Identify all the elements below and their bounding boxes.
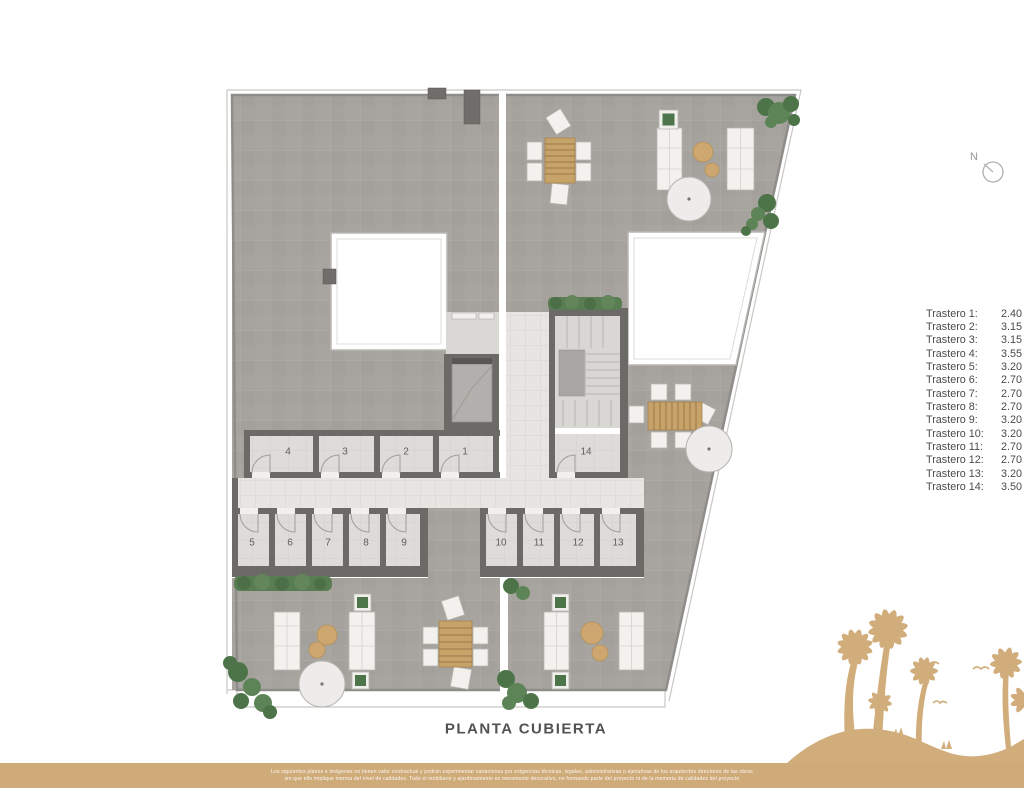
- legend-row: Trastero 5:3.20: [926, 360, 1022, 373]
- legend-room-name: Trastero 13:: [926, 468, 984, 480]
- legend-room-name: Trastero 9:: [926, 414, 978, 426]
- page-title: PLANTA CUBIERTA: [445, 721, 607, 738]
- legend-row: Trastero 10:3.20: [926, 427, 1022, 440]
- roof-plan-page: 1 2 3 4 5 6 7 8 9 10 11 12 13 14 N Trast…: [0, 0, 1024, 800]
- palm-silhouette: [786, 608, 1024, 766]
- legend-room-name: Trastero 2:: [926, 321, 978, 333]
- legend-room-area: 2.70: [1001, 401, 1022, 413]
- legend-room-name: Trastero 14:: [926, 481, 984, 493]
- disclaimer-line-2: sin que ello implique merma del nivel de…: [285, 776, 740, 782]
- parasol-top: [667, 177, 711, 221]
- room-label-13: 13: [612, 538, 623, 549]
- room-label-7: 7: [325, 538, 331, 549]
- disclaimer-bar: Los siguientes planos e imágenes no tien…: [0, 763, 1024, 788]
- north-indicator-icon: [983, 162, 1003, 182]
- room-label-9: 9: [401, 538, 407, 549]
- floor-plan: [0, 0, 1024, 800]
- room-label-8: 8: [363, 538, 369, 549]
- legend-row: Trastero 8:2.70: [926, 400, 1022, 413]
- legend-row: Trastero 14:3.50: [926, 480, 1022, 493]
- legend-room-name: Trastero 3:: [926, 334, 978, 346]
- legend-row: Trastero 3:3.15: [926, 334, 1022, 347]
- parasol-bottom-left: [299, 661, 345, 707]
- room-label-5: 5: [249, 538, 255, 549]
- palm-fronds-c: [910, 656, 938, 685]
- legend-room-area: 2.70: [1001, 374, 1022, 386]
- legend-room-area: 2.70: [1001, 454, 1022, 466]
- room-label-10: 10: [495, 538, 506, 549]
- legend-room-area: 3.20: [1001, 414, 1022, 426]
- room-label-14: 14: [580, 447, 591, 458]
- palm-fronds-e: [990, 646, 1023, 679]
- legend-room-area: 3.55: [1001, 348, 1022, 360]
- legend-room-name: Trastero 4:: [926, 348, 978, 360]
- room-label-11: 11: [534, 538, 544, 549]
- palm-fronds-b: [867, 608, 908, 649]
- room-label-6: 6: [287, 538, 293, 549]
- staircase: [549, 308, 628, 432]
- storage-legend: Trastero 1:2.40 Trastero 2:3.15 Trastero…: [926, 307, 1022, 494]
- skylight-void-left: [331, 233, 447, 350]
- legend-room-name: Trastero 5:: [926, 361, 978, 373]
- legend-row: Trastero 6:2.70: [926, 374, 1022, 387]
- legend-room-area: 3.15: [1001, 334, 1022, 346]
- legend-room-area: 3.50: [1001, 481, 1022, 493]
- legend-row: Trastero 7:2.70: [926, 387, 1022, 400]
- palm-fronds-a: [836, 628, 873, 665]
- room-label-3: 3: [342, 447, 348, 458]
- elevator: [444, 312, 499, 430]
- legend-room-name: Trastero 1:: [926, 308, 978, 320]
- legend-room-name: Trastero 7:: [926, 388, 978, 400]
- legend-room-name: Trastero 11:: [926, 441, 983, 453]
- legend-row: Trastero 1:2.40: [926, 307, 1022, 320]
- planter-top: [659, 110, 678, 129]
- legend-row: Trastero 12:2.70: [926, 454, 1022, 467]
- north-label: N: [970, 151, 978, 163]
- legend-room-area: 2.40: [1001, 308, 1022, 320]
- room-label-12: 12: [572, 538, 583, 549]
- legend-room-area: 3.20: [1001, 468, 1022, 480]
- hedge-bottom-left: [234, 574, 332, 591]
- legend-room-name: Trastero 8:: [926, 401, 978, 413]
- legend-room-name: Trastero 10:: [926, 428, 984, 440]
- passage: [428, 508, 480, 578]
- room-label-2: 2: [403, 447, 409, 458]
- legend-row: Trastero 9:3.20: [926, 414, 1022, 427]
- legend-row: Trastero 13:3.20: [926, 467, 1022, 480]
- legend-room-area: 3.15: [1001, 321, 1022, 333]
- legend-row: Trastero 2:3.15: [926, 320, 1022, 333]
- room-label-4: 4: [285, 447, 291, 458]
- legend-row: Trastero 4:3.55: [926, 347, 1022, 360]
- legend-room-name: Trastero 12:: [926, 454, 984, 466]
- room-label-1: 1: [462, 447, 468, 458]
- legend-room-area: 3.20: [1001, 428, 1022, 440]
- legend-room-area: 2.70: [1001, 441, 1022, 453]
- skylight-void-right: [628, 232, 765, 365]
- legend-room-name: Trastero 6:: [926, 374, 978, 386]
- disclaimer-line-1: Los siguientes planos e imágenes no tien…: [271, 769, 753, 775]
- legend-room-area: 2.70: [1001, 388, 1022, 400]
- legend-room-area: 3.20: [1001, 361, 1022, 373]
- palm-fronds-f: [1009, 686, 1024, 714]
- legend-row: Trastero 11:2.70: [926, 440, 1022, 453]
- hedge-core: [548, 295, 622, 310]
